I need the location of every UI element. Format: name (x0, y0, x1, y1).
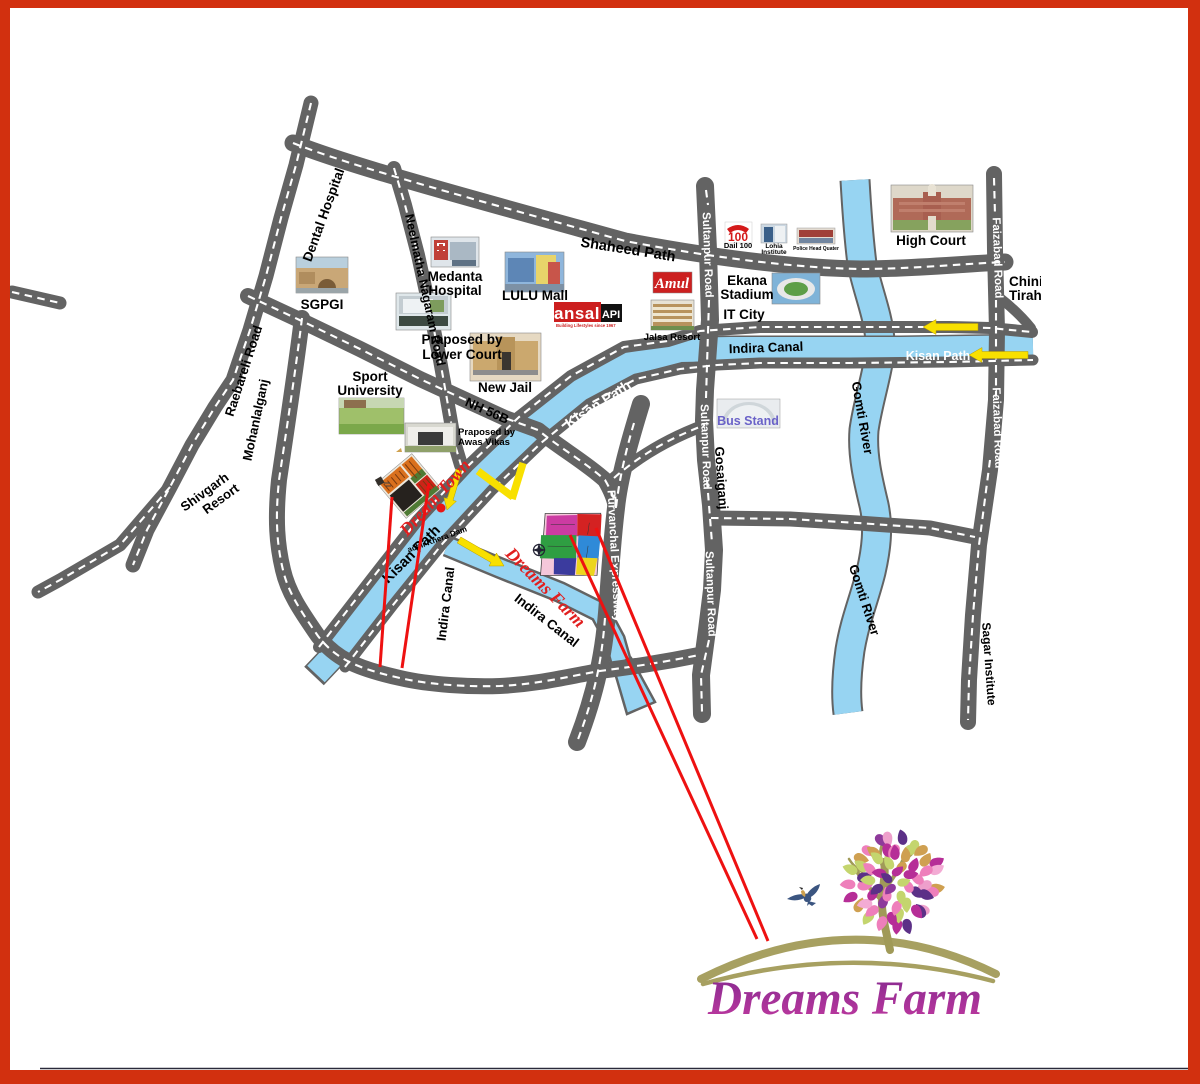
svg-text:University: University (337, 383, 403, 398)
svg-text:Kisan Path: Kisan Path (906, 349, 971, 363)
svg-text:LULU Mall: LULU Mall (502, 288, 568, 303)
svg-text:Amul: Amul (654, 276, 690, 292)
svg-text:Jalsa Resort: Jalsa Resort (644, 332, 701, 343)
svg-text:ansal: ansal (554, 304, 600, 323)
svg-text:Ekana: Ekana (727, 273, 767, 288)
svg-text:Police Head Quater: Police Head Quater (793, 246, 839, 252)
svg-text:API: API (602, 309, 620, 321)
svg-text:New Jail: New Jail (478, 380, 532, 395)
svg-text:Awas Vikas: Awas Vikas (458, 437, 510, 448)
svg-text:Stadium: Stadium (720, 287, 773, 302)
svg-text:Institute: Institute (761, 249, 787, 256)
svg-text:Dreams Farm: Dreams Farm (707, 972, 982, 1025)
svg-text:SGPGI: SGPGI (301, 297, 344, 312)
svg-text:High Court: High Court (896, 233, 966, 248)
svg-text:IT City: IT City (723, 307, 765, 322)
svg-text:Medanta: Medanta (428, 269, 483, 284)
svg-text:Bus Stand: Bus Stand (717, 414, 779, 428)
svg-text:Building Lifestyles since 1967: Building Lifestyles since 1967 (556, 323, 616, 328)
svg-text:Praposed by: Praposed by (421, 332, 503, 347)
svg-text:Lower Court: Lower Court (422, 347, 502, 362)
svg-text:Sport: Sport (352, 369, 388, 384)
svg-text:Hospital: Hospital (428, 283, 481, 298)
svg-text:Indira Canal: Indira Canal (729, 339, 804, 357)
svg-text:Chini: Chini (1009, 274, 1043, 289)
svg-text:Dail 100: Dail 100 (724, 241, 752, 250)
